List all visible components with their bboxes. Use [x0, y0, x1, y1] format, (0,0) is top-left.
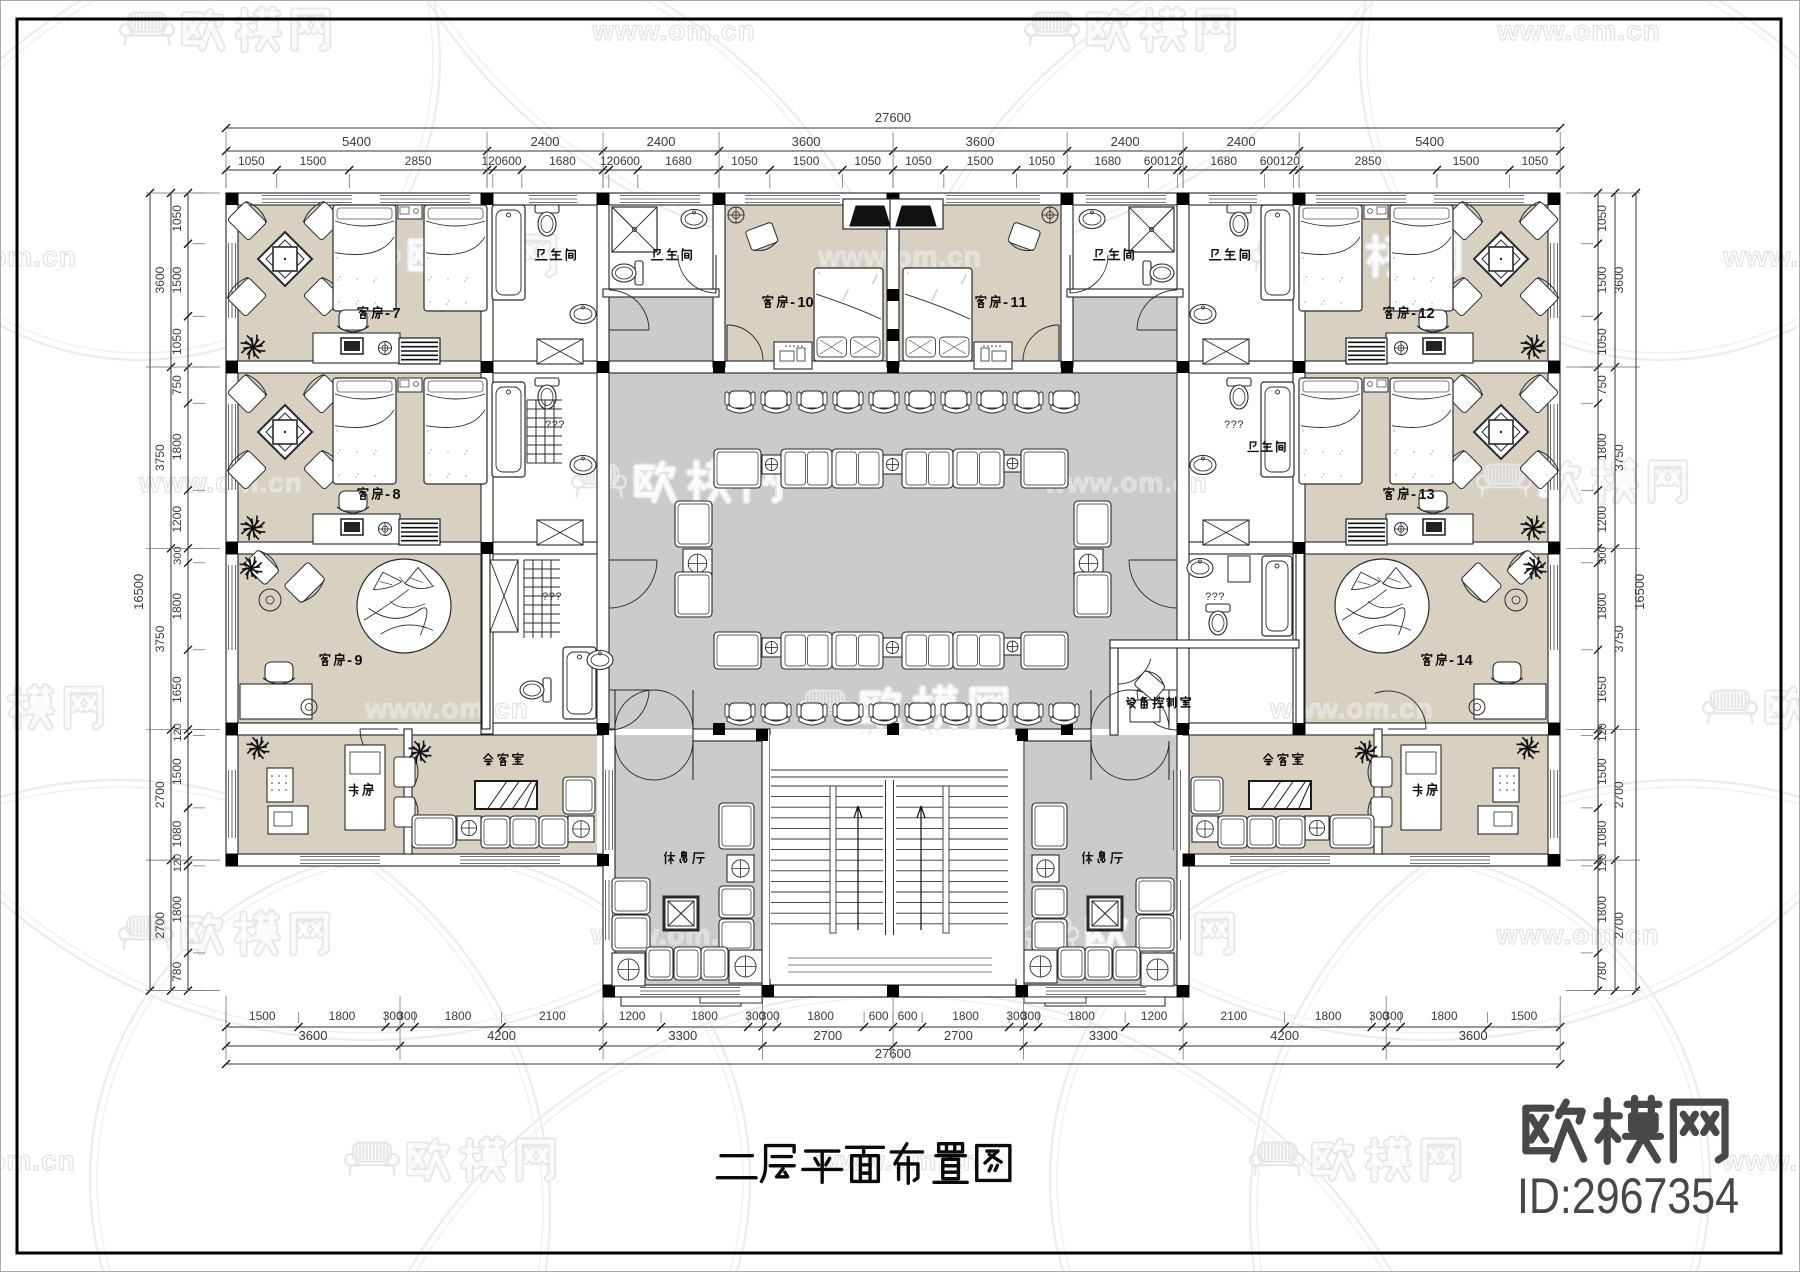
- svg-text:1050: 1050: [238, 154, 265, 168]
- svg-text:27600: 27600: [875, 110, 911, 125]
- svg-text:2100: 2100: [539, 1009, 566, 1023]
- svg-text:120600: 120600: [482, 154, 522, 168]
- svg-text:2850: 2850: [1355, 154, 1382, 168]
- svg-text:1080: 1080: [170, 820, 184, 847]
- svg-text:3750: 3750: [1612, 444, 1626, 471]
- svg-text:1680: 1680: [665, 154, 692, 168]
- svg-text:3750: 3750: [1612, 625, 1626, 652]
- svg-text:1200: 1200: [1141, 1009, 1168, 1023]
- svg-text:1650: 1650: [1595, 676, 1609, 703]
- svg-text:1200: 1200: [1595, 506, 1609, 533]
- svg-text:16500: 16500: [131, 574, 146, 610]
- svg-text:1680: 1680: [1210, 154, 1237, 168]
- svg-text:4200: 4200: [1270, 1028, 1299, 1043]
- svg-text:1: 1: [1019, 295, 1027, 311]
- svg-text:1: 1: [1418, 487, 1426, 503]
- svg-text:4200: 4200: [487, 1028, 516, 1043]
- svg-text:-: -: [1411, 487, 1416, 503]
- svg-text:1800: 1800: [1595, 593, 1609, 620]
- svg-text:www.om.cn: www.om.cn: [364, 693, 529, 724]
- svg-text:www.om.cn: www.om.cn: [0, 241, 77, 272]
- svg-text:1680: 1680: [549, 154, 576, 168]
- svg-text:1050: 1050: [1521, 154, 1548, 168]
- svg-text:0: 0: [806, 295, 814, 311]
- svg-text:1800: 1800: [1315, 1009, 1342, 1023]
- svg-text:-: -: [790, 295, 795, 311]
- svg-text:1800: 1800: [1068, 1009, 1095, 1023]
- svg-text:1650: 1650: [170, 676, 184, 703]
- svg-text:1: 1: [797, 295, 805, 311]
- svg-text:2850: 2850: [405, 154, 432, 168]
- svg-text:120: 120: [1597, 854, 1609, 872]
- svg-text:780: 780: [170, 961, 184, 981]
- svg-text:600120: 600120: [1260, 154, 1300, 168]
- svg-text:3600: 3600: [299, 1028, 328, 1043]
- svg-text:300: 300: [1597, 546, 1609, 564]
- svg-text:-: -: [1411, 306, 1416, 322]
- svg-text:1800: 1800: [170, 896, 184, 923]
- svg-text:2700: 2700: [1612, 912, 1626, 939]
- svg-text:600: 600: [898, 1009, 918, 1023]
- svg-text:1: 1: [1418, 306, 1426, 322]
- svg-text:1050: 1050: [854, 154, 881, 168]
- svg-text:1800: 1800: [329, 1009, 356, 1023]
- svg-text:5400: 5400: [1415, 134, 1444, 149]
- svg-text:-: -: [1003, 295, 1008, 311]
- svg-text:1800: 1800: [1595, 896, 1609, 923]
- svg-text:3600: 3600: [153, 266, 167, 293]
- svg-text:7: 7: [392, 306, 400, 322]
- svg-text:2100: 2100: [1221, 1009, 1248, 1023]
- svg-text:1800: 1800: [691, 1009, 718, 1023]
- svg-text:5400: 5400: [342, 134, 371, 149]
- svg-text:16500: 16500: [1632, 574, 1647, 610]
- svg-text:-: -: [347, 653, 352, 669]
- svg-text:2400: 2400: [1227, 134, 1256, 149]
- svg-text:1800: 1800: [1595, 433, 1609, 460]
- svg-text:-: -: [385, 487, 390, 503]
- svg-text:1: 1: [1010, 295, 1018, 311]
- svg-text:2: 2: [1427, 306, 1435, 322]
- svg-text:3: 3: [1427, 487, 1435, 503]
- svg-text:2400: 2400: [1111, 134, 1140, 149]
- svg-text:780: 780: [1595, 961, 1609, 981]
- svg-text:3600: 3600: [1459, 1028, 1488, 1043]
- svg-text:600: 600: [869, 1009, 889, 1023]
- svg-text:1800: 1800: [445, 1009, 472, 1023]
- svg-text:1500: 1500: [300, 154, 327, 168]
- svg-text:???: ???: [545, 420, 565, 432]
- svg-text:1050: 1050: [1028, 154, 1055, 168]
- svg-text:2700: 2700: [153, 912, 167, 939]
- svg-text:3600: 3600: [1612, 266, 1626, 293]
- svg-text:120: 120: [1597, 723, 1609, 741]
- svg-text:1050: 1050: [905, 154, 932, 168]
- svg-text:8: 8: [392, 487, 400, 503]
- svg-text:1680: 1680: [1094, 154, 1121, 168]
- svg-text:www.om.cn: www.om.cn: [0, 1145, 76, 1176]
- svg-text:1500: 1500: [1453, 154, 1480, 168]
- svg-text:-: -: [385, 306, 390, 322]
- svg-text:2400: 2400: [647, 134, 676, 149]
- svg-text:1800: 1800: [170, 433, 184, 460]
- svg-text:3600: 3600: [966, 134, 995, 149]
- svg-text:1500: 1500: [793, 154, 820, 168]
- svg-text:www.om.cn: www.om.cn: [1722, 241, 1800, 272]
- svg-text:1500: 1500: [1511, 1009, 1538, 1023]
- svg-text:1050: 1050: [1595, 328, 1609, 355]
- svg-text:1500: 1500: [1595, 758, 1609, 785]
- svg-text:2700: 2700: [1612, 781, 1626, 808]
- svg-text:1: 1: [1456, 653, 1464, 669]
- svg-text:1050: 1050: [170, 205, 184, 232]
- svg-text:1800: 1800: [952, 1009, 979, 1023]
- svg-text:1500: 1500: [170, 266, 184, 293]
- svg-text:2400: 2400: [531, 134, 560, 149]
- svg-text:3300: 3300: [1089, 1028, 1118, 1043]
- svg-text:www.om.cn: www.om.cn: [1495, 919, 1660, 950]
- svg-text:1080: 1080: [1595, 820, 1609, 847]
- svg-text:1800: 1800: [807, 1009, 834, 1023]
- svg-text:2700: 2700: [153, 781, 167, 808]
- svg-text:1800: 1800: [1431, 1009, 1458, 1023]
- svg-text:1200: 1200: [170, 506, 184, 533]
- svg-text:???: ???: [1224, 420, 1244, 432]
- svg-text:2700: 2700: [944, 1028, 973, 1043]
- svg-text:???: ???: [542, 592, 562, 604]
- svg-text:???: ???: [1205, 592, 1225, 604]
- svg-text:3750: 3750: [153, 444, 167, 471]
- svg-text:4: 4: [1465, 653, 1474, 669]
- svg-text:2700: 2700: [813, 1028, 842, 1043]
- svg-text:1050: 1050: [731, 154, 758, 168]
- svg-text:750: 750: [1595, 375, 1609, 395]
- svg-text:600120: 600120: [1144, 154, 1184, 168]
- svg-text:1200: 1200: [619, 1009, 646, 1023]
- svg-text:3750: 3750: [153, 625, 167, 652]
- svg-text:1050: 1050: [170, 328, 184, 355]
- svg-text:1500: 1500: [170, 758, 184, 785]
- svg-text:3600: 3600: [792, 134, 821, 149]
- svg-text:9: 9: [354, 653, 362, 669]
- svg-text:1800: 1800: [170, 593, 184, 620]
- svg-text:1500: 1500: [967, 154, 994, 168]
- svg-text:3300: 3300: [668, 1028, 697, 1043]
- svg-text:ID:2967354: ID:2967354: [1517, 1168, 1739, 1224]
- svg-text:1050: 1050: [1595, 205, 1609, 232]
- svg-text:1500: 1500: [1595, 266, 1609, 293]
- svg-text:1500: 1500: [249, 1009, 276, 1023]
- svg-text:-: -: [1449, 653, 1454, 669]
- svg-text:750: 750: [170, 375, 184, 395]
- svg-text:300: 300: [172, 546, 184, 564]
- svg-text:120600: 120600: [600, 154, 640, 168]
